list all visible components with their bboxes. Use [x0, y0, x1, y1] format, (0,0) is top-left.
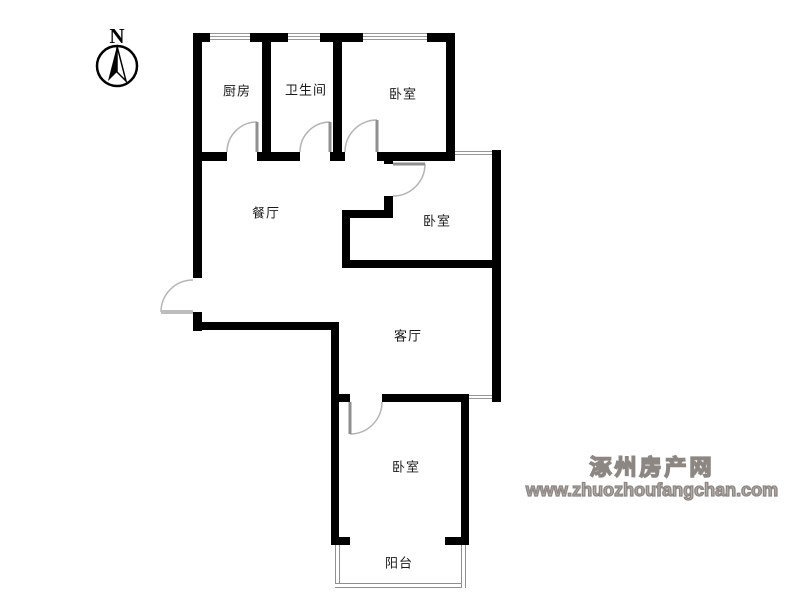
- wall: [342, 260, 501, 268]
- kitchen-door-arc: [227, 122, 257, 152]
- wall: [492, 150, 501, 402]
- wall: [331, 322, 339, 545]
- watermark-site-name: 涿州房产网: [518, 455, 786, 480]
- compass-needle-left: [108, 46, 117, 81]
- room-label-bedroom-bottom: 卧室: [392, 457, 420, 476]
- floor-plan: N 厨房 卫生间 卧室 餐厅 卧室 客厅 卧室 阳台 涿州房产网 www.zhu…: [0, 0, 800, 600]
- living-window: [469, 395, 492, 400]
- bedroom-middle-window: [455, 151, 492, 157]
- entrance-door-arc: [161, 280, 193, 312]
- room-label-balcony: 阳台: [385, 553, 413, 572]
- wall: [331, 394, 350, 402]
- wall: [193, 322, 339, 330]
- watermark-site-url: www.zhuozhoufangchan.com: [518, 481, 786, 501]
- wall: [461, 394, 469, 545]
- watermark: 涿州房产网 www.zhuozhoufangchan.com: [518, 455, 786, 501]
- wall: [446, 33, 455, 153]
- north-compass-icon: N: [97, 24, 137, 86]
- wall: [384, 152, 393, 164]
- compass-circle: [97, 46, 137, 86]
- wall: [250, 33, 288, 42]
- room-label-dining: 餐厅: [252, 203, 280, 222]
- wall: [193, 33, 210, 42]
- room-label-bedroom-middle: 卧室: [423, 211, 451, 230]
- bedroom-bottom-door-arc: [350, 402, 382, 434]
- kitchen-window: [210, 33, 250, 42]
- bathroom-window: [288, 33, 320, 42]
- wall: [330, 152, 345, 161]
- balcony-window-left: [335, 545, 340, 588]
- compass-north-label: N: [109, 24, 124, 48]
- compass-needle-right: [117, 46, 126, 81]
- wall: [262, 42, 271, 152]
- bathroom-door-arc: [300, 122, 330, 152]
- room-label-bedroom-top: 卧室: [389, 84, 417, 103]
- wall: [257, 152, 300, 161]
- bedroom-top-door-arc: [345, 120, 377, 152]
- balcony-window-bottom: [335, 583, 466, 588]
- wall: [333, 42, 342, 152]
- wall: [382, 394, 469, 402]
- wall: [331, 537, 350, 545]
- room-label-bathroom: 卫生间: [285, 80, 327, 99]
- wall: [320, 33, 363, 42]
- wall: [193, 152, 227, 161]
- wall: [342, 210, 350, 267]
- bedroom-middle-door-arc: [393, 164, 425, 196]
- room-label-living: 客厅: [394, 326, 422, 345]
- wall: [445, 537, 469, 545]
- room-label-kitchen: 厨房: [223, 81, 251, 100]
- bedroom-top-window: [363, 33, 427, 42]
- balcony-window-right: [461, 545, 466, 588]
